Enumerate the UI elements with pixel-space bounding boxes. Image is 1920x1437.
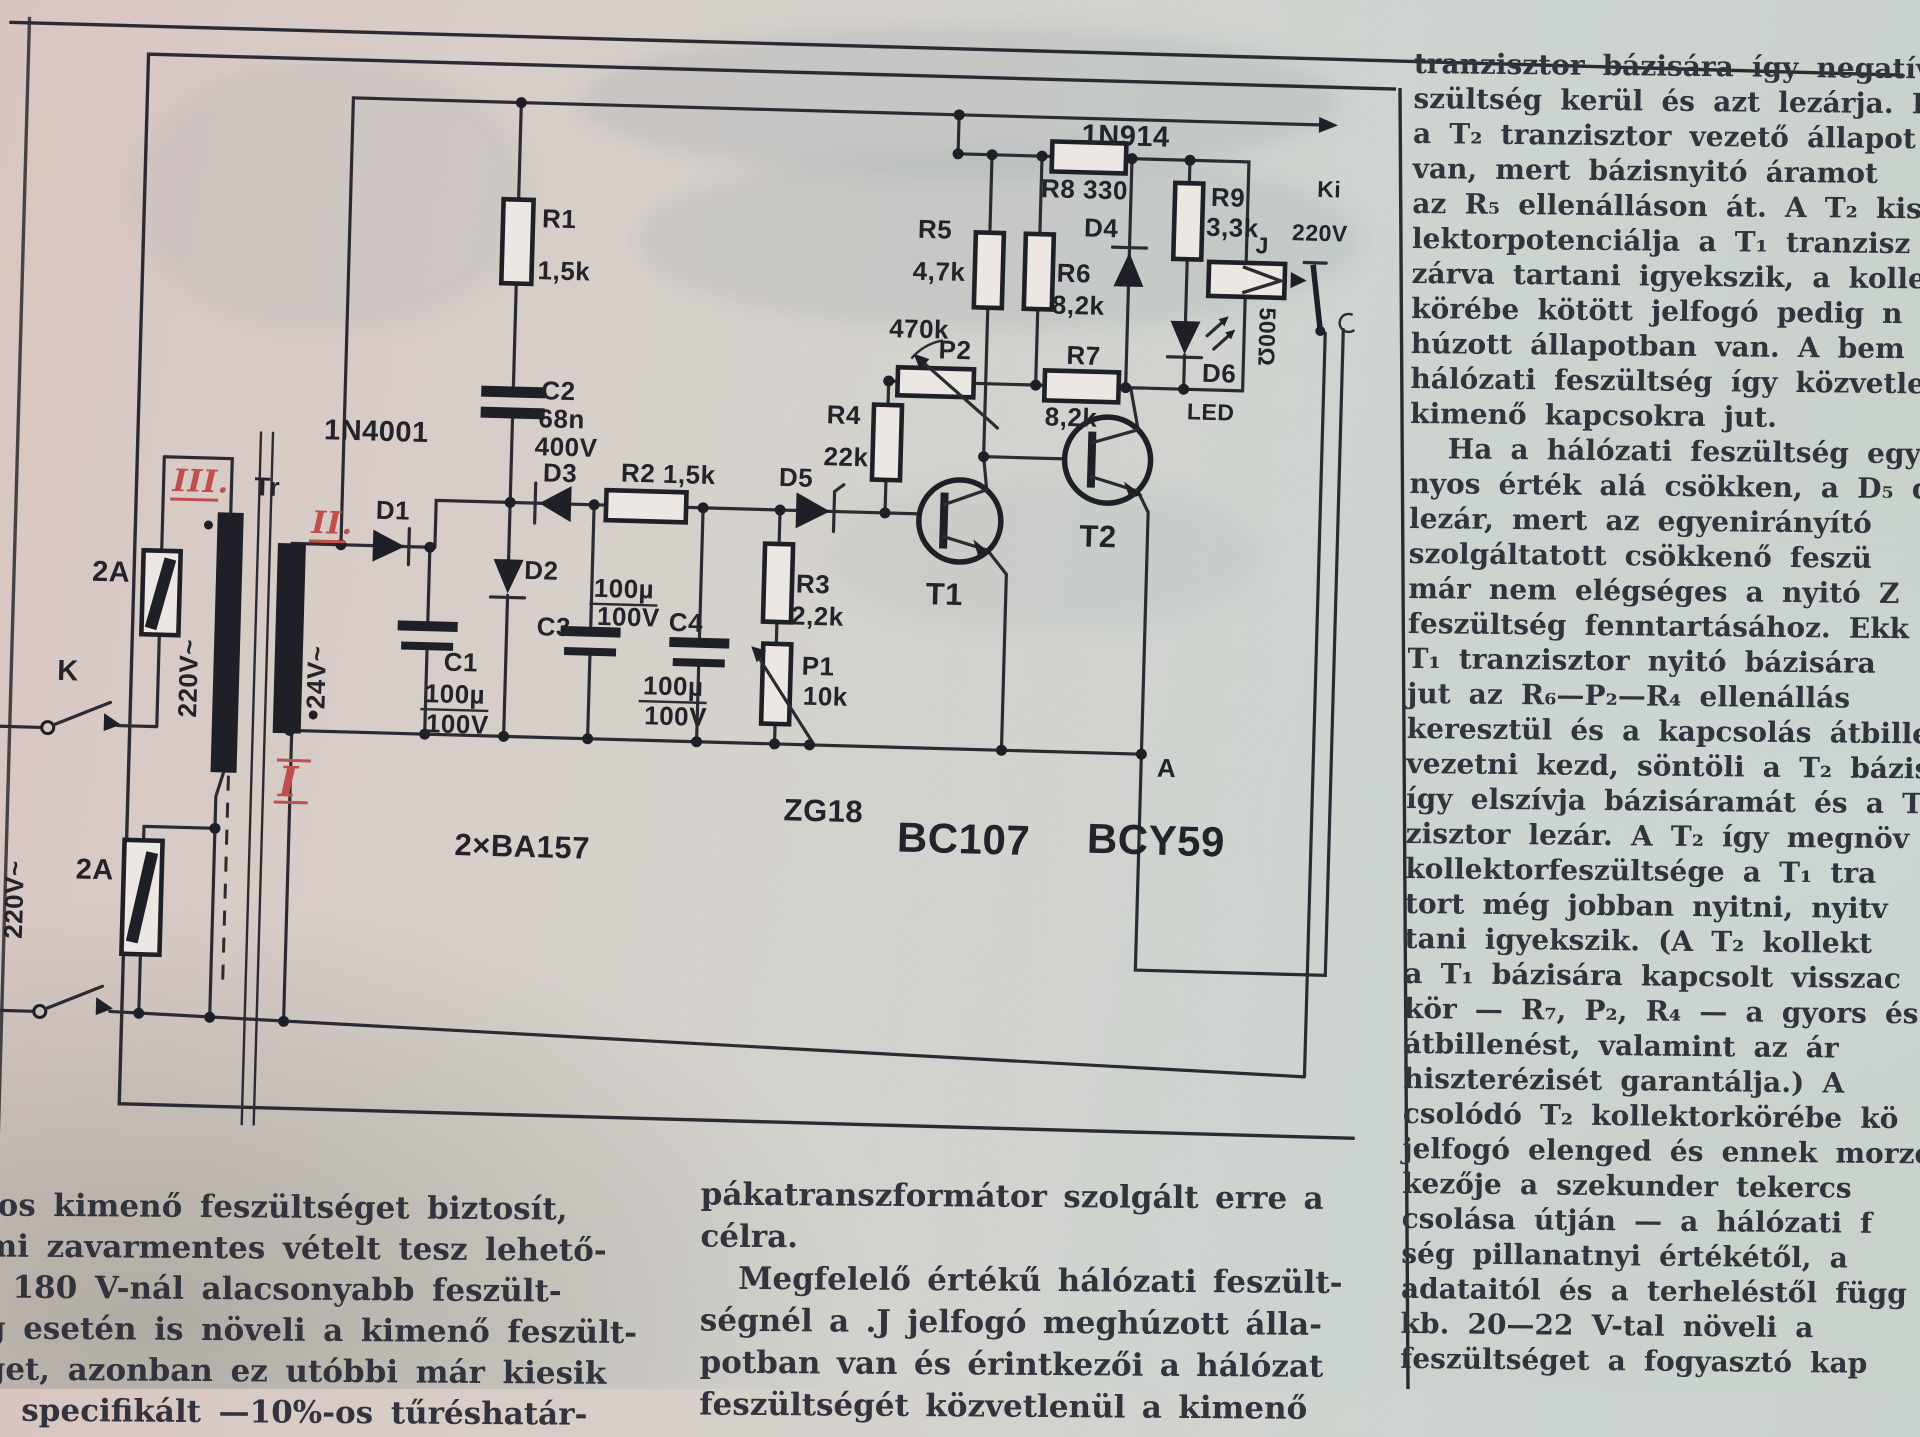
label-c3-v: 100V	[597, 601, 661, 633]
text-line: lektorpotenciálja a T₁ tranzisz	[1412, 221, 1920, 262]
label-r6: R6	[1056, 258, 1091, 289]
diode-d1	[372, 528, 409, 565]
label-d4: D4	[1084, 212, 1119, 243]
label-p2: P2	[938, 334, 972, 365]
wire	[1243, 297, 1246, 391]
text-line: húzott állapotban van. A bem	[1411, 326, 1920, 367]
switch-contact	[104, 713, 121, 731]
label-r6-value: 8,2k	[1051, 289, 1104, 320]
collector	[944, 489, 986, 506]
wire	[210, 772, 224, 1018]
feedback-arrow	[1319, 117, 1338, 134]
bottom-middle-text-column: pákatranszformátor szolgált erre a célra…	[699, 1174, 1401, 1431]
label-secondary-voltage: 24V~	[300, 645, 332, 709]
label-p1: P1	[801, 651, 835, 682]
winding-dot	[204, 520, 213, 529]
text-line: tani igyekszik. (A T₂ kollekt	[1404, 921, 1920, 962]
label-fuse2: 2A	[75, 853, 114, 886]
cap-plate	[673, 658, 725, 667]
fuse-2a-upper	[141, 550, 180, 635]
text-line: zisztor lezár. A T₂ így megnöv	[1406, 816, 1920, 857]
label-j: J	[1255, 232, 1269, 258]
diode-bar	[408, 529, 409, 565]
diode-bar	[535, 483, 536, 523]
base-bar	[1091, 432, 1093, 488]
primary-winding	[211, 512, 244, 773]
label-primary-voltage: 220V~	[172, 639, 204, 718]
text-line: már nem elégséges a nyitó Z	[1408, 571, 1920, 612]
text-line: adataitól és a terheléstől függ	[1401, 1271, 1920, 1312]
text-line: kimenő kapcsokra jut.	[1410, 396, 1920, 437]
contact-cap	[1304, 263, 1326, 264]
text-line: jelfogó elenged és ennek morze	[1402, 1131, 1920, 1172]
text-line: a T₂ tranzisztor vezető állapot	[1413, 116, 1920, 157]
label-1n914: 1N914	[1081, 119, 1170, 153]
label-c1-uf: 100µ	[424, 678, 485, 710]
label-ba157: 2×BA157	[454, 827, 590, 866]
label-ki: Ki	[1317, 176, 1342, 203]
label-ki-voltage: 220V	[1292, 219, 1349, 247]
label-fuse1: 2A	[92, 556, 131, 589]
label-c4-v: 100V	[644, 700, 708, 732]
led-d6	[1167, 315, 1235, 359]
text-line: feszültséget a fogyasztó kap	[1400, 1341, 1920, 1382]
label-c2-value: 68n	[538, 403, 585, 434]
fixed-contact	[1339, 314, 1354, 332]
label-k: K	[57, 655, 79, 688]
relay-j	[1207, 260, 1356, 337]
label-r4: R4	[826, 399, 861, 430]
switch-lever	[46, 985, 103, 1011]
winding-mark-underline	[309, 541, 345, 542]
diode-bar	[1167, 357, 1201, 358]
resistor-r9	[1173, 183, 1203, 260]
text-line: az R₅ ellenálláson át. A T₂ kis	[1412, 186, 1920, 227]
right-text-column: tranzisztor bázisára így negatív szültsé…	[1400, 46, 1920, 1382]
label-bc107: BC107	[896, 813, 1031, 864]
text-line: mi zavarmentes vételt tesz lehető-	[0, 1226, 705, 1272]
label-d2: D2	[524, 555, 559, 586]
wire	[292, 543, 435, 547]
text-line: van, mert bázisnyitó áramot	[1413, 151, 1920, 192]
diode-d3	[535, 483, 572, 524]
label-r5: R5	[918, 214, 953, 245]
cap-plate	[398, 620, 458, 632]
label-1n4001: 1N4001	[324, 414, 429, 449]
diode-triangle	[1170, 321, 1201, 355]
label-c3-uf: 100µ	[593, 573, 654, 605]
text-line: pákatranszformátor szolgált erre a	[701, 1174, 1401, 1221]
label-c4-uf: 100µ	[643, 670, 704, 702]
diode-triangle	[493, 559, 524, 594]
label-led: LED	[1187, 398, 1235, 425]
text-line: Megfelelő értékű hálózati feszült-	[700, 1258, 1400, 1305]
winding-mark-ii: II.	[310, 505, 353, 542]
label-p1-value: 10k	[802, 681, 848, 712]
winding-dot	[309, 710, 318, 719]
resistor-r2	[606, 490, 687, 522]
label-r3-value: 2,2k	[791, 600, 844, 631]
label-d5: D5	[779, 462, 814, 493]
winding-mark-iii: III.	[171, 463, 229, 501]
label-r4-value: 22k	[823, 441, 869, 472]
cap-plate	[669, 637, 729, 649]
text-line: tort még jobban nyitni, nyitv	[1405, 886, 1920, 927]
resistor-r5	[974, 232, 1004, 308]
text-line: feszültség fenntartásához. Ekk	[1408, 606, 1920, 647]
diode-triangle	[796, 492, 831, 529]
text-line: kör — R₇, P₂, R₄ — a gyors és	[1404, 991, 1920, 1032]
text-line: g esetén is növeli a kimenő feszült-	[0, 1308, 704, 1354]
switch-terminal	[42, 721, 54, 733]
wire	[353, 98, 1319, 125]
moving-contact	[1311, 265, 1322, 331]
label-a: A	[1157, 753, 1177, 784]
label-mains-voltage: 220V~	[0, 860, 30, 939]
label-r7-value: 8,2k	[1044, 401, 1097, 432]
fuse-2a-lower	[121, 840, 162, 955]
wire	[1135, 324, 1343, 975]
text-line: szültség kerül és azt lezárja. Közb	[1413, 81, 1920, 122]
label-r5-value: 4,7k	[912, 256, 965, 287]
label-t1: T1	[925, 576, 963, 612]
resistor-r3	[763, 544, 793, 623]
label-d6: D6	[1202, 358, 1237, 389]
wire	[982, 551, 1007, 750]
diode-triangle	[372, 530, 405, 563]
transistor-t1	[918, 479, 1002, 563]
cap-plate	[481, 407, 545, 420]
text-line: így elszívja bázisáramát és a T₂	[1406, 781, 1920, 822]
bottom-left-text-column: -os kimenő feszültséget biztosít, mi zav…	[0, 1185, 705, 1436]
label-r9-value: 3,3k	[1206, 212, 1259, 243]
collector	[1092, 429, 1137, 444]
switch-lever	[54, 701, 111, 727]
text-line: célra.	[700, 1216, 1400, 1263]
text-line: hiszterézisét garantálja.) A	[1403, 1061, 1920, 1102]
text-line: csolódó T₂ kollektorkörébe kö	[1403, 1096, 1920, 1137]
diode-triangle	[539, 485, 572, 522]
text-line: kollektorfeszültsége a T₁ tra	[1405, 851, 1920, 892]
text-line: szolgáltatott csökkenő feszü	[1409, 536, 1920, 577]
text-line: T₁ tranzisztor nyitó bázisára	[1407, 641, 1920, 682]
text-line: -os kimenő feszültséget biztosít,	[0, 1185, 705, 1231]
label-zg18: ZG18	[783, 792, 863, 829]
label-r2: R2 1,5k	[621, 458, 716, 491]
cap-plate	[564, 647, 616, 656]
text-line: potban van és érintkezői a hálózat	[699, 1342, 1399, 1389]
winding-mark-i: I	[277, 757, 300, 807]
winding-mark-underline	[170, 499, 218, 500]
resistor-r4	[872, 405, 902, 481]
label-r8: R8 330	[1041, 173, 1129, 205]
diode-d2	[491, 559, 526, 598]
label-c4: C4	[668, 607, 703, 638]
diode-triangle	[1113, 252, 1144, 287]
wire	[1130, 491, 1148, 754]
label-tr: Tr	[254, 471, 280, 502]
label-c1-v: 100V	[426, 708, 490, 740]
label-c1: C1	[443, 647, 478, 678]
base-bar	[943, 493, 945, 549]
ground-rail	[280, 730, 1142, 754]
text-line: specifikált —10%-os tűréshatár-	[0, 1390, 703, 1436]
text-line: lezár, mert az egyenirányító	[1409, 501, 1920, 542]
text-line: Ha a hálózati feszültség egy	[1410, 431, 1920, 472]
capacitor-c4	[669, 637, 730, 668]
label-coil-resistance: 500Ω	[1253, 307, 1281, 367]
capacitor-c2	[481, 386, 546, 420]
wire	[588, 505, 595, 739]
text-line: vezetni kezd, söntöli a T₂ bázis	[1406, 746, 1920, 787]
resistor-r6	[1024, 234, 1054, 310]
label-r1-value: 1,5k	[537, 255, 590, 286]
contact-arrow	[1290, 272, 1306, 288]
text-line: a T₁ bázisára kapcsolt visszac	[1404, 956, 1920, 997]
text-line: körébe kötött jelfogó pedig n	[1411, 291, 1920, 332]
text-line: átbillenést, valamint az ár	[1403, 1026, 1920, 1067]
text-line: ség pillanatnyi értékétől, a	[1401, 1236, 1920, 1277]
text-line: kb. 20—22 V-tal növeli a	[1400, 1306, 1920, 1347]
text-line: . 180 V-nál alacsonyabb feszült-	[0, 1267, 704, 1313]
wires	[0, 89, 1349, 1078]
label-c2: C2	[541, 375, 576, 406]
label-c3: C3	[536, 611, 571, 642]
label-r9: R9	[1211, 182, 1246, 213]
text-line: tranzisztor bázisára így negatív	[1414, 46, 1920, 87]
transistor-circle	[918, 479, 1002, 563]
diode-bar	[1113, 247, 1147, 248]
resistor-r7	[1044, 370, 1119, 402]
text-line: feszültségét közvetlenül a kimenő	[699, 1384, 1399, 1431]
label-r7: R7	[1066, 340, 1101, 371]
text-line: jut az R₆—P₂—R₄ ellenállás	[1407, 676, 1920, 717]
label-r1: R1	[542, 203, 577, 234]
scanned-magazine-page: { "right_column": { "lines": [ "tranzisz…	[0, 0, 1920, 1389]
resistor-r1	[501, 199, 533, 284]
diode-bar	[491, 597, 525, 598]
text-line: ségnél a .J jelfogó meghúzott álla-	[700, 1300, 1400, 1347]
label-bcy59: BCY59	[1086, 815, 1225, 866]
cap-plate	[481, 386, 545, 399]
wire	[341, 98, 353, 545]
text-line: zárva tartani igyekszik, a kollek	[1411, 256, 1920, 297]
page-left-border	[0, 17, 30, 1201]
label-d3: D3	[543, 457, 578, 488]
diode-bar	[833, 484, 843, 531]
label-r3: R3	[796, 568, 831, 599]
text-line: kezője a szekunder tekercs	[1402, 1166, 1920, 1207]
text-line: keresztül és a kapcsolás átbille	[1407, 711, 1920, 752]
text-line: nyos érték alá csökken, a D₅ d	[1409, 466, 1920, 507]
label-d1: D1	[375, 495, 410, 526]
switch-gang-line	[223, 749, 230, 987]
label-t2: T2	[1079, 518, 1117, 554]
text-line: hálózati feszültség így közvetlen	[1410, 361, 1920, 402]
text-line: csolása útján — a hálózati f	[1402, 1201, 1920, 1242]
switch-terminal	[34, 1005, 46, 1017]
